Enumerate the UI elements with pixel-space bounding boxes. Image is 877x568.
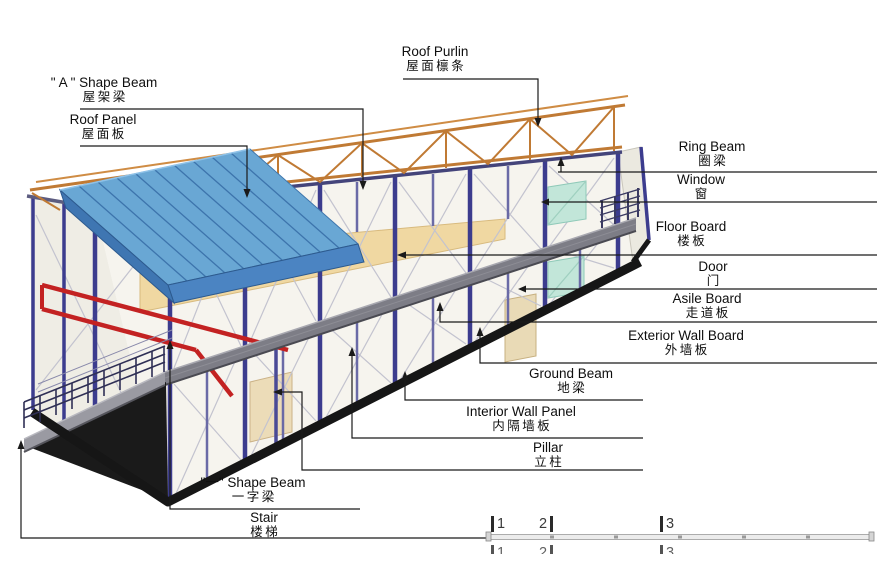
label-floor-board-en: Floor Board — [656, 219, 727, 234]
label-door: Door 门 — [698, 259, 727, 288]
scale-mark-2-clipped: 2 — [536, 545, 553, 554]
label-door-zh: 门 — [698, 274, 727, 288]
scale-row-clipped: 1 2 3 — [0, 545, 877, 554]
label-a-shape-beam-zh: 屋架梁 — [51, 90, 157, 104]
label-window-zh: 窗 — [677, 187, 725, 201]
label-stair-en: Stair — [248, 510, 281, 525]
label-pillar: Pillar 立柱 — [532, 440, 565, 469]
label-asile-board-zh: 走道板 — [672, 306, 741, 320]
label-roof-panel-zh: 屋面板 — [70, 127, 137, 141]
label-one-shape-beam: "一" Shape Beam 一字梁 — [201, 475, 306, 504]
label-ground-beam-zh: 地梁 — [529, 381, 613, 395]
label-interior-wall-panel: Interior Wall Panel 内隔墙板 — [466, 404, 576, 433]
scale-mark-3-clipped: 3 — [660, 545, 677, 554]
label-door-en: Door — [698, 259, 727, 274]
label-exterior-wall-board: Exterior Wall Board 外墙板 — [628, 328, 744, 357]
label-roof-purlin-zh: 屋面檩条 — [402, 59, 469, 73]
label-interior-wall-panel-zh: 内隔墙板 — [466, 419, 576, 433]
label-floor-board-zh: 楼板 — [656, 234, 727, 248]
label-stair-zh: 楼梯 — [248, 525, 281, 539]
label-window-en: Window — [677, 172, 725, 187]
label-roof-panel: Roof Panel 屋面板 — [70, 112, 137, 141]
label-one-shape-beam-en: "一" Shape Beam — [201, 475, 306, 490]
label-exterior-wall-board-zh: 外墙板 — [628, 343, 744, 357]
scale-mark-1-clipped: 1 — [491, 545, 508, 554]
label-asile-board: Asile Board 走道板 — [672, 291, 741, 320]
label-ground-beam-en: Ground Beam — [529, 366, 613, 381]
scale-tick-2 — [550, 516, 553, 532]
label-ground-beam: Ground Beam 地梁 — [529, 366, 613, 395]
diagram-page: { "labels": { "a_shape_beam": {"en": "\"… — [0, 0, 877, 568]
label-ring-beam-en: Ring Beam — [679, 139, 746, 154]
label-floor-board: Floor Board 楼板 — [656, 219, 727, 248]
scale-number-3: 3 — [663, 516, 677, 532]
label-asile-board-en: Asile Board — [672, 291, 741, 306]
label-stair: Stair 楼梯 — [248, 510, 281, 539]
label-roof-panel-en: Roof Panel — [70, 112, 137, 127]
interior-wall-panel-shape — [250, 372, 292, 442]
scale-bar — [486, 532, 874, 541]
label-pillar-zh: 立柱 — [532, 455, 565, 469]
label-roof-purlin-en: Roof Purlin — [402, 44, 469, 59]
label-a-shape-beam-en: " A " Shape Beam — [51, 75, 157, 90]
label-roof-purlin: Roof Purlin 屋面檩条 — [402, 44, 469, 73]
label-interior-wall-panel-en: Interior Wall Panel — [466, 404, 576, 419]
label-ring-beam: Ring Beam 圈梁 — [679, 139, 746, 168]
label-a-shape-beam: " A " Shape Beam 屋架梁 — [51, 75, 157, 104]
label-pillar-en: Pillar — [532, 440, 565, 455]
label-one-shape-beam-zh: 一字梁 — [201, 490, 306, 504]
scale-mark-2: 2 — [536, 516, 553, 532]
label-window: Window 窗 — [677, 172, 725, 201]
scale-number-1: 1 — [494, 516, 508, 532]
scale-number-2: 2 — [536, 516, 550, 532]
scale-mark-1: 1 — [491, 516, 508, 532]
label-ring-beam-zh: 圈梁 — [679, 154, 746, 168]
label-exterior-wall-board-en: Exterior Wall Board — [628, 328, 744, 343]
scale-mark-3: 3 — [660, 516, 677, 532]
